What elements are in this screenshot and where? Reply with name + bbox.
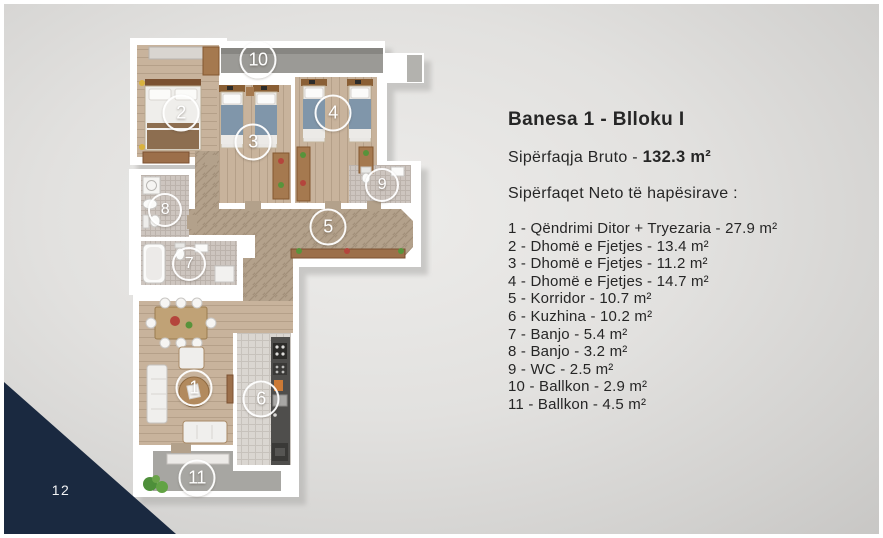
room-list-item: 4 - Dhomë e Fjetjes - 14.7 m² [508,273,780,291]
room-marker-10: 10 [240,42,277,79]
net-areas-heading: Sipërfaqet Neto të hapësirave : [508,185,780,203]
room-list-item: 11 - Ballkon - 4.5 m² [508,396,780,414]
room-marker-5: 5 [310,209,347,246]
corridor-connector-floor [243,258,293,301]
room-marker-9: 9 [365,168,399,202]
room-list-item: 5 - Korridor - 10.7 m² [508,290,780,308]
page-number: 12 [46,482,76,498]
room-marker-4: 4 [315,95,352,132]
room-marker-11: 11 [179,460,216,497]
corridor-sideboard [291,248,405,258]
room-list-item: 8 - Banjo - 3.2 m² [508,343,780,361]
gross-area-value: 132.3 m² [643,148,711,166]
presentation-slide: 1 2 3 4 5 6 7 8 9 10 11 Banesa 1 - Bllok… [0,0,883,538]
exterior-block-side [407,55,422,82]
room-marker-1: 1 [176,370,213,407]
room-list-item: 6 - Kuzhina - 10.2 m² [508,308,780,326]
room-list-item: 3 - Dhomë e Fjetjes - 11.2 m² [508,255,780,273]
room-list-item: 7 - Banjo - 5.4 m² [508,326,780,344]
room-list-item: 10 - Ballkon - 2.9 m² [508,378,780,396]
room-marker-8: 8 [148,193,182,227]
room-marker-3: 3 [235,124,272,161]
room-list-item: 2 - Dhomë e Fjetjes - 13.4 m² [508,238,780,256]
room-marker-6: 6 [243,381,280,418]
room-list-item: 9 - WC - 2.5 m² [508,361,780,379]
gross-area-label: Sipërfaqja Bruto - [508,149,643,166]
room-marker-7: 7 [172,247,206,281]
room-marker-2: 2 [163,95,200,132]
info-panel: Banesa 1 - Blloku I Sipërfaqja Bruto - 1… [508,109,780,414]
corner-triangle-decoration [4,382,176,534]
apartment-title: Banesa 1 - Blloku I [508,109,780,131]
room-list-item: 1 - Qëndrimi Ditor + Tryezaria - 27.9 m² [508,220,780,238]
gross-area-line: Sipërfaqja Bruto - 132.3 m² [508,148,780,167]
room-area-list: 1 - Qëndrimi Ditor + Tryezaria - 27.9 m²… [508,220,780,414]
